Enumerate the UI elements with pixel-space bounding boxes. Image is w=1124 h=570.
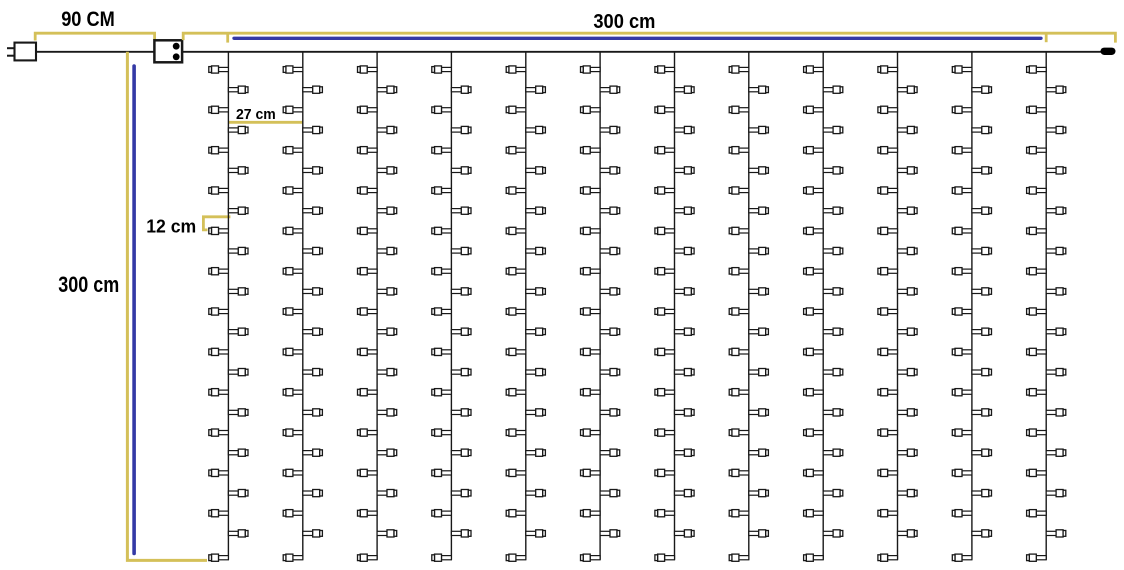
svg-text:300 cm: 300 cm xyxy=(58,272,119,297)
svg-text:27 cm: 27 cm xyxy=(236,107,276,123)
svg-text:12 cm: 12 cm xyxy=(146,215,196,236)
svg-text:90 CM: 90 CM xyxy=(61,7,115,31)
svg-text:300 cm: 300 cm xyxy=(593,11,655,33)
